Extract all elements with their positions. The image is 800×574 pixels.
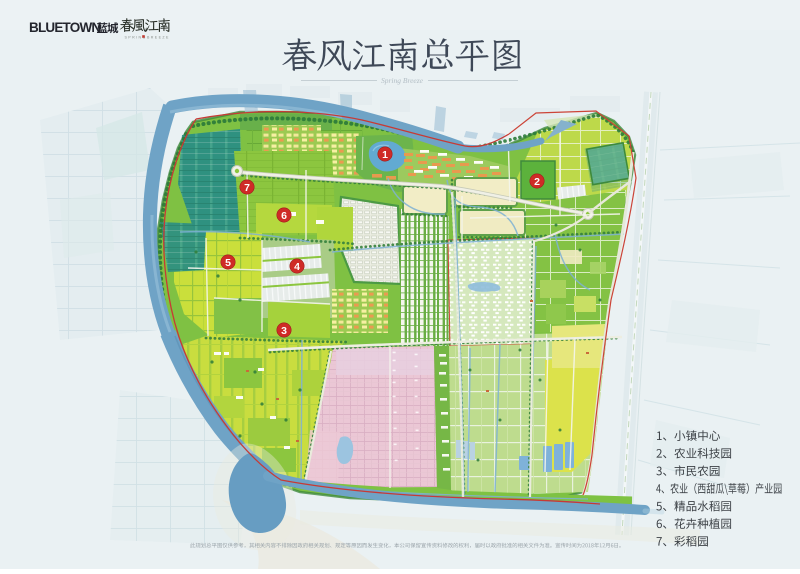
svg-text:BLUETOWN: BLUETOWN	[29, 20, 100, 35]
svg-text:BREEZE: BREEZE	[147, 36, 170, 40]
svg-text:5: 5	[225, 257, 231, 269]
svg-text:6: 6	[281, 210, 287, 222]
svg-text:2: 2	[534, 176, 540, 188]
svg-text:Spring Breeze: Spring Breeze	[381, 76, 424, 85]
svg-text:3: 3	[281, 325, 287, 337]
svg-text:4: 4	[294, 261, 300, 273]
svg-text:1: 1	[382, 149, 388, 161]
svg-text:7: 7	[244, 182, 250, 194]
